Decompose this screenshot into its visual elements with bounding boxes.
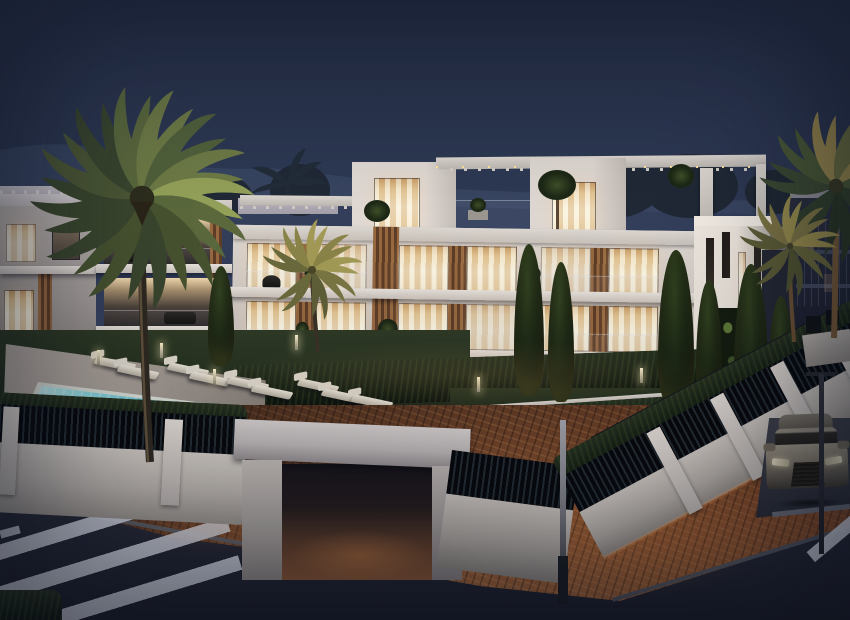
palm-small <box>260 218 363 352</box>
palm-right-small <box>738 194 842 342</box>
palm-trees <box>0 0 850 620</box>
facade-warm-wash <box>220 340 720 410</box>
scene-apartment-complex-dusk <box>0 0 850 620</box>
